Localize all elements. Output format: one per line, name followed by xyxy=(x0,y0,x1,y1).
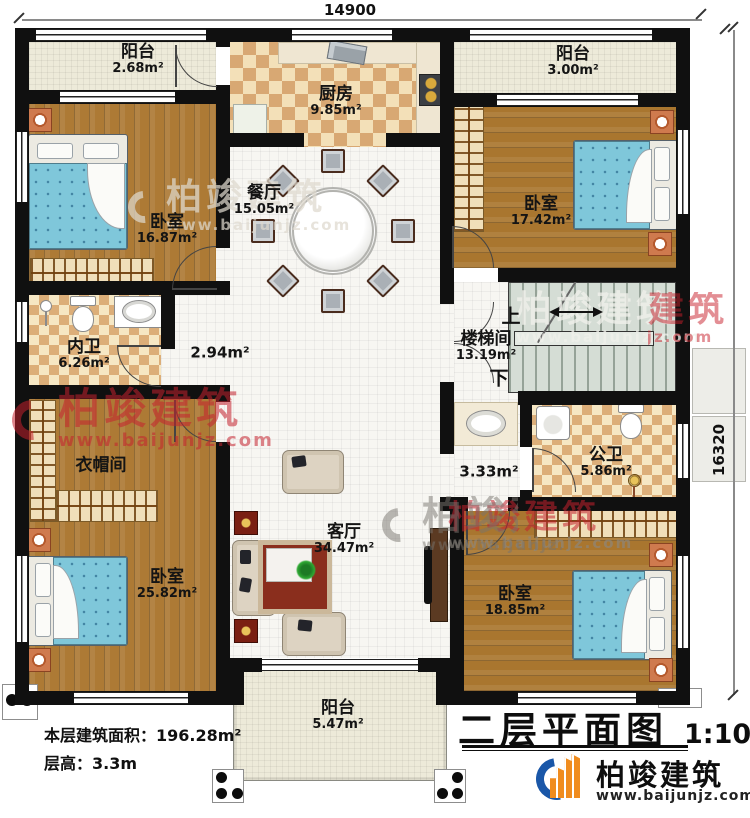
wardrobe-cloakroom-bottom xyxy=(56,490,158,522)
tv-cabinet xyxy=(430,528,448,622)
room-name: 卧室 xyxy=(511,195,571,214)
wall-segment xyxy=(161,387,175,399)
room-area: 5.86m² xyxy=(580,465,631,480)
room-label-bedroom-top-left: 卧室 16.87m² xyxy=(137,213,197,247)
toilet-tank xyxy=(618,404,644,413)
room-label-bedroom-top-right: 卧室 17.42m² xyxy=(511,195,571,229)
wall-segment xyxy=(518,391,676,405)
dining-table xyxy=(289,187,377,275)
room-name: 卧室 xyxy=(137,213,197,232)
room-name: 阳台 xyxy=(547,45,598,64)
room-label-cloakroom: 衣帽间 xyxy=(76,456,127,475)
nightstand xyxy=(648,232,672,256)
wall-segment xyxy=(440,391,454,405)
floor-area-note: 本层建筑面积：196.28m² xyxy=(44,722,241,746)
wall-segment xyxy=(161,295,175,349)
room-label-dining: 餐厅 15.05m² xyxy=(234,184,294,218)
room-area: 6.26m² xyxy=(58,357,109,372)
bed-top-right xyxy=(573,140,678,230)
sofa-cushion xyxy=(297,619,312,631)
arrow-head-right xyxy=(593,307,603,317)
dimension-top-value: 14900 xyxy=(324,1,376,19)
room-label-bedroom-bottom-left: 卧室 25.82m² xyxy=(137,568,197,602)
dining-chair xyxy=(251,219,275,243)
nightstand xyxy=(27,648,51,672)
room-area: 15.05m² xyxy=(234,203,294,218)
room-name: 内卫 xyxy=(58,338,109,357)
room-name: 衣帽间 xyxy=(76,456,127,475)
wall-segment xyxy=(216,442,230,705)
window xyxy=(16,132,28,202)
dining-chair xyxy=(321,289,345,313)
room-area: 18.85m² xyxy=(485,604,545,619)
room-area: 25.82m² xyxy=(137,587,197,602)
room-name: 阳台 xyxy=(312,699,363,718)
dimension-right-value: 16320 xyxy=(710,424,728,476)
wall-segment xyxy=(15,385,230,399)
arrow-head-left xyxy=(549,307,559,317)
wall-segment xyxy=(436,658,450,705)
window xyxy=(677,130,689,214)
wall-segment xyxy=(216,385,230,402)
tv-icon xyxy=(424,546,432,604)
washer-icon xyxy=(536,406,570,440)
room-area: 17.42m² xyxy=(511,214,571,229)
title-underline xyxy=(462,745,688,748)
window xyxy=(16,556,28,642)
room-name: 餐厅 xyxy=(234,184,294,203)
room-name: 公卫 xyxy=(580,446,631,465)
stair-direction-arrow xyxy=(558,311,594,313)
room-area: 9.85m² xyxy=(310,104,361,119)
room-name: 客厅 xyxy=(314,523,374,542)
room-name: 阳台 xyxy=(112,43,163,62)
window xyxy=(497,94,638,106)
window xyxy=(292,29,392,41)
window xyxy=(677,556,689,648)
end-table xyxy=(234,511,258,535)
room-area: 3.33m² xyxy=(459,464,518,481)
drawing-scale: 1:100 xyxy=(684,719,750,750)
wall-segment xyxy=(230,133,304,147)
bed-top-left xyxy=(28,134,128,250)
floor-cloakroom-bedroom-bl xyxy=(29,399,216,691)
dimension-line-right xyxy=(733,30,735,695)
dining-chair xyxy=(321,149,345,173)
room-name: 卧室 xyxy=(485,585,545,604)
fridge xyxy=(233,104,267,134)
room-label-balcony-top-left: 阳台 2.68m² xyxy=(112,43,163,77)
plant-icon xyxy=(296,560,316,580)
sink-icon xyxy=(466,410,506,437)
brand-logo-icon xyxy=(536,752,588,804)
wall-segment xyxy=(244,658,262,672)
room-area: 2.68m² xyxy=(112,62,163,77)
room-name: 卧室 xyxy=(137,568,197,587)
room-label-bedroom-bottom-right: 卧室 18.85m² xyxy=(485,585,545,619)
dining-chair xyxy=(391,219,415,243)
shower-rod xyxy=(45,311,47,326)
toilet-icon xyxy=(620,413,642,439)
window xyxy=(36,29,206,41)
nightstand xyxy=(27,528,51,552)
sink-icon xyxy=(122,300,156,323)
window xyxy=(470,29,652,41)
title-underline-thin xyxy=(462,750,688,751)
room-label-hallway-east: 3.33m² xyxy=(459,464,518,481)
room-label-living: 客厅 34.47m² xyxy=(314,523,374,557)
stair-handrail xyxy=(514,331,654,346)
floor-height-note: 层高：3.3m xyxy=(44,750,137,774)
exterior-ledge xyxy=(692,348,746,414)
room-name: 楼梯间 xyxy=(456,330,516,349)
wardrobe-cloakroom-left xyxy=(30,400,56,522)
room-label-hallway-small: 2.94m² xyxy=(190,345,249,362)
sofa-cushion xyxy=(240,550,251,564)
stair-up-label: 上 xyxy=(501,302,520,329)
wall-segment xyxy=(508,497,678,511)
room-label-stairwell: 楼梯间 13.19m² xyxy=(456,330,516,364)
room-area: 3.00m² xyxy=(547,64,598,79)
wall-segment xyxy=(230,658,244,705)
bed-bottom-left xyxy=(26,556,128,646)
nightstand xyxy=(649,658,673,682)
room-label-kitchen: 厨房 9.85m² xyxy=(310,85,361,119)
dimension-line-top xyxy=(22,19,702,21)
nightstand xyxy=(28,108,52,132)
toilet-tank xyxy=(70,296,96,306)
wall-segment xyxy=(520,405,532,447)
wall-segment xyxy=(498,268,676,282)
room-name: 厨房 xyxy=(310,85,361,104)
room-area: 2.94m² xyxy=(190,345,249,362)
window xyxy=(74,692,188,704)
room-label-inner-bath: 内卫 6.26m² xyxy=(58,338,109,372)
window xyxy=(16,302,28,342)
room-label-balcony-bottom: 阳台 5.47m² xyxy=(312,699,363,733)
wall-segment xyxy=(216,85,230,248)
end-table xyxy=(234,619,258,643)
wall-segment xyxy=(450,497,464,705)
nightstand xyxy=(649,543,673,567)
window xyxy=(677,424,689,478)
floor-plan-canvas: 阳台 2.68m² 厨房 9.85m² 阳台 3.00m² 卧室 16.87m²… xyxy=(0,0,750,818)
brand-site: www.baijunjz.com xyxy=(596,788,750,804)
wall-segment xyxy=(440,282,454,304)
stair-down-label: 下 xyxy=(489,364,508,391)
window xyxy=(60,91,175,103)
wardrobe-bedroom-tr xyxy=(454,100,484,232)
wall-segment xyxy=(418,658,436,672)
room-area: 34.47m² xyxy=(314,542,374,557)
room-area: 5.47m² xyxy=(312,718,363,733)
wall-segment xyxy=(440,497,468,511)
wall-segment xyxy=(216,28,230,47)
room-label-balcony-top-right: 阳台 3.00m² xyxy=(547,45,598,79)
nightstand xyxy=(650,110,674,134)
sliding-door xyxy=(262,659,418,671)
room-area: 16.87m² xyxy=(137,232,197,247)
wall-segment xyxy=(440,268,454,282)
sofa-bottom xyxy=(282,612,346,656)
sofa-cushion xyxy=(291,455,306,468)
room-area: 13.19m² xyxy=(456,349,516,364)
bed-bottom-right xyxy=(572,570,672,660)
room-label-public-bath: 公卫 5.86m² xyxy=(580,446,631,480)
toilet-icon xyxy=(72,306,94,332)
